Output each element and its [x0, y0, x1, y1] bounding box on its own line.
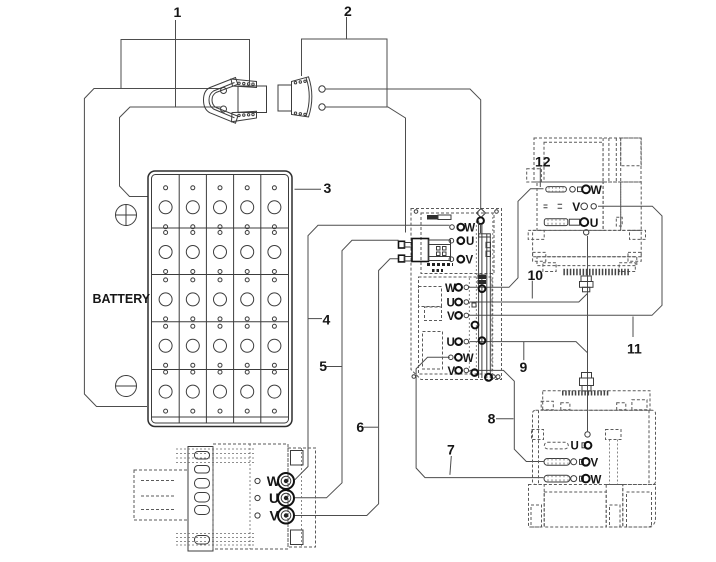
svg-text:U: U [447, 298, 455, 310]
svg-text:W: W [445, 283, 456, 295]
svg-text:W: W [463, 353, 474, 365]
svg-text:U: U [466, 236, 474, 248]
svg-text:W: W [591, 183, 603, 197]
svg-text:8: 8 [488, 411, 496, 427]
svg-text:U: U [590, 216, 599, 230]
svg-text:11: 11 [627, 341, 642, 357]
svg-text:9: 9 [520, 359, 528, 375]
svg-text:V: V [466, 254, 474, 266]
svg-text:W: W [591, 474, 602, 486]
svg-text:V: V [572, 200, 580, 214]
svg-text:3: 3 [324, 180, 332, 196]
svg-text:BATTERY: BATTERY [93, 292, 151, 306]
svg-text:1: 1 [174, 4, 182, 20]
svg-text:12: 12 [535, 154, 551, 170]
svg-text:6: 6 [356, 419, 364, 435]
svg-text:7: 7 [447, 442, 455, 458]
svg-text:V: V [447, 311, 455, 323]
svg-text:2: 2 [344, 3, 352, 19]
svg-text:V: V [591, 458, 599, 470]
svg-text:10: 10 [528, 267, 544, 283]
svg-text:4: 4 [323, 312, 331, 328]
svg-text:5: 5 [319, 358, 327, 374]
svg-text:W: W [464, 222, 475, 234]
svg-text:U: U [571, 441, 579, 453]
svg-text:U: U [447, 337, 455, 349]
svg-text:V: V [448, 366, 456, 378]
